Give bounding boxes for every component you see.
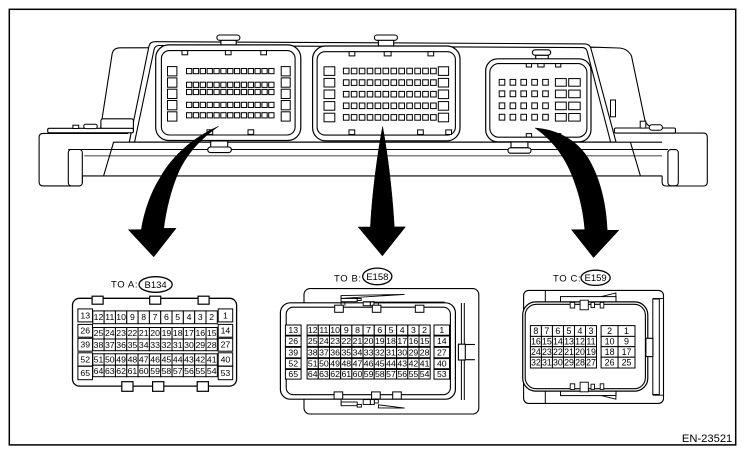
svg-text:8: 8 xyxy=(141,312,146,322)
svg-text:TO B:: TO B: xyxy=(334,274,362,285)
svg-text:43: 43 xyxy=(184,354,194,364)
svg-text:19: 19 xyxy=(162,328,172,338)
svg-text:53: 53 xyxy=(437,369,447,379)
svg-text:16: 16 xyxy=(409,336,419,346)
svg-text:2: 2 xyxy=(607,326,612,336)
svg-text:18: 18 xyxy=(386,336,396,346)
svg-text:10: 10 xyxy=(605,337,615,347)
svg-text:49: 49 xyxy=(116,354,126,364)
svg-text:21: 21 xyxy=(564,347,574,357)
svg-text:44: 44 xyxy=(173,354,183,364)
svg-text:26: 26 xyxy=(605,358,615,368)
svg-text:38: 38 xyxy=(308,347,318,357)
svg-text:34: 34 xyxy=(353,347,363,357)
svg-text:40: 40 xyxy=(437,359,447,369)
svg-text:64: 64 xyxy=(308,369,318,379)
svg-text:16: 16 xyxy=(195,328,205,338)
svg-text:55: 55 xyxy=(409,369,419,379)
svg-text:22: 22 xyxy=(553,347,563,357)
svg-text:18: 18 xyxy=(605,347,615,357)
svg-text:13: 13 xyxy=(564,337,574,347)
svg-text:21: 21 xyxy=(353,336,363,346)
svg-text:20: 20 xyxy=(364,336,374,346)
svg-text:13: 13 xyxy=(80,310,90,320)
svg-text:10: 10 xyxy=(116,312,126,322)
svg-text:57: 57 xyxy=(386,369,396,379)
svg-text:20: 20 xyxy=(150,328,160,338)
svg-text:14: 14 xyxy=(221,326,231,336)
svg-text:34: 34 xyxy=(139,340,149,350)
svg-text:25: 25 xyxy=(308,336,318,346)
svg-text:22: 22 xyxy=(128,328,138,338)
svg-text:17: 17 xyxy=(397,336,407,346)
svg-text:5: 5 xyxy=(175,312,180,322)
svg-text:EN-23521: EN-23521 xyxy=(682,433,732,445)
svg-text:14: 14 xyxy=(553,337,563,347)
svg-text:31: 31 xyxy=(173,340,183,350)
svg-text:59: 59 xyxy=(150,366,160,376)
svg-text:14: 14 xyxy=(437,336,447,346)
svg-text:42: 42 xyxy=(195,354,205,364)
svg-text:15: 15 xyxy=(542,337,552,347)
svg-text:3: 3 xyxy=(198,312,203,322)
svg-text:3: 3 xyxy=(411,325,416,335)
svg-text:4: 4 xyxy=(578,326,583,336)
svg-text:32: 32 xyxy=(531,358,541,368)
svg-text:50: 50 xyxy=(319,359,329,369)
svg-text:3: 3 xyxy=(589,326,594,336)
svg-text:19: 19 xyxy=(375,336,385,346)
svg-text:38: 38 xyxy=(94,340,104,350)
svg-text:52: 52 xyxy=(80,354,90,364)
svg-text:59: 59 xyxy=(364,369,374,379)
svg-text:61: 61 xyxy=(341,369,351,379)
svg-text:39: 39 xyxy=(288,347,298,357)
svg-text:7: 7 xyxy=(153,312,158,322)
svg-text:12: 12 xyxy=(575,337,585,347)
svg-text:29: 29 xyxy=(564,358,574,368)
svg-text:35: 35 xyxy=(341,347,351,357)
svg-text:11: 11 xyxy=(319,325,328,335)
svg-text:30: 30 xyxy=(397,347,407,357)
svg-text:27: 27 xyxy=(586,358,596,368)
svg-text:40: 40 xyxy=(221,354,231,364)
svg-text:8: 8 xyxy=(533,326,538,336)
svg-text:33: 33 xyxy=(364,347,374,357)
svg-text:45: 45 xyxy=(162,354,172,364)
svg-text:55: 55 xyxy=(195,366,205,376)
svg-text:24: 24 xyxy=(319,336,329,346)
svg-text:1: 1 xyxy=(439,325,444,335)
svg-text:TO C:: TO C: xyxy=(553,274,581,285)
svg-text:23: 23 xyxy=(116,328,126,338)
svg-text:52: 52 xyxy=(288,359,298,369)
svg-text:51: 51 xyxy=(308,359,318,369)
svg-text:10: 10 xyxy=(330,325,340,335)
svg-text:42: 42 xyxy=(409,359,419,369)
svg-text:4: 4 xyxy=(187,312,192,322)
svg-text:27: 27 xyxy=(221,340,231,350)
svg-text:1: 1 xyxy=(624,326,629,336)
svg-text:61: 61 xyxy=(128,366,138,376)
svg-text:24: 24 xyxy=(105,328,115,338)
svg-text:60: 60 xyxy=(139,366,149,376)
svg-text:12: 12 xyxy=(308,325,318,335)
svg-text:32: 32 xyxy=(375,347,385,357)
svg-text:5: 5 xyxy=(389,325,394,335)
svg-text:23: 23 xyxy=(542,347,552,357)
svg-text:29: 29 xyxy=(195,340,205,350)
svg-text:41: 41 xyxy=(420,359,430,369)
svg-text:56: 56 xyxy=(184,366,194,376)
svg-text:24: 24 xyxy=(531,347,541,357)
svg-text:41: 41 xyxy=(207,354,217,364)
svg-text:48: 48 xyxy=(128,354,138,364)
svg-text:19: 19 xyxy=(586,347,596,357)
svg-text:65: 65 xyxy=(288,369,298,379)
svg-text:15: 15 xyxy=(420,336,430,346)
svg-text:E158: E158 xyxy=(366,272,388,283)
svg-text:4: 4 xyxy=(400,325,405,335)
svg-text:6: 6 xyxy=(377,325,382,335)
svg-text:60: 60 xyxy=(353,369,363,379)
svg-text:16: 16 xyxy=(531,337,541,347)
svg-text:6: 6 xyxy=(555,326,560,336)
svg-text:9: 9 xyxy=(624,337,629,347)
svg-text:37: 37 xyxy=(105,340,115,350)
svg-text:45: 45 xyxy=(375,359,385,369)
svg-text:48: 48 xyxy=(341,359,351,369)
svg-text:6: 6 xyxy=(164,312,169,322)
svg-text:30: 30 xyxy=(553,358,563,368)
svg-text:39: 39 xyxy=(80,340,90,350)
svg-text:28: 28 xyxy=(207,340,217,350)
svg-text:65: 65 xyxy=(80,368,90,378)
svg-text:2: 2 xyxy=(422,325,427,335)
svg-text:26: 26 xyxy=(80,326,90,336)
svg-text:31: 31 xyxy=(542,358,552,368)
svg-text:53: 53 xyxy=(221,368,231,378)
svg-text:9: 9 xyxy=(344,325,349,335)
svg-text:25: 25 xyxy=(622,358,632,368)
svg-text:18: 18 xyxy=(173,328,183,338)
svg-text:TO A:: TO A: xyxy=(111,280,138,291)
svg-text:9: 9 xyxy=(130,312,135,322)
svg-text:27: 27 xyxy=(437,347,447,357)
svg-text:22: 22 xyxy=(341,336,351,346)
svg-text:1: 1 xyxy=(223,310,228,320)
svg-text:11: 11 xyxy=(105,312,114,322)
svg-text:35: 35 xyxy=(128,340,138,350)
svg-text:26: 26 xyxy=(288,336,298,346)
svg-text:36: 36 xyxy=(330,347,340,357)
svg-text:62: 62 xyxy=(116,366,126,376)
svg-text:33: 33 xyxy=(150,340,160,350)
svg-text:23: 23 xyxy=(330,336,340,346)
svg-text:47: 47 xyxy=(139,354,149,364)
svg-text:46: 46 xyxy=(364,359,374,369)
svg-text:32: 32 xyxy=(162,340,172,350)
svg-text:29: 29 xyxy=(409,347,419,357)
svg-text:17: 17 xyxy=(622,347,632,357)
svg-text:17: 17 xyxy=(184,328,194,338)
svg-text:51: 51 xyxy=(94,354,104,364)
svg-text:28: 28 xyxy=(420,347,430,357)
svg-text:58: 58 xyxy=(375,369,385,379)
svg-text:7: 7 xyxy=(544,326,549,336)
svg-text:56: 56 xyxy=(397,369,407,379)
svg-text:13: 13 xyxy=(288,325,298,335)
svg-text:E159: E159 xyxy=(585,273,607,284)
svg-text:54: 54 xyxy=(420,369,430,379)
svg-text:5: 5 xyxy=(567,326,572,336)
svg-text:20: 20 xyxy=(575,347,585,357)
svg-text:49: 49 xyxy=(330,359,340,369)
svg-text:2: 2 xyxy=(209,312,214,322)
svg-text:64: 64 xyxy=(94,366,104,376)
svg-text:54: 54 xyxy=(207,366,217,376)
svg-text:25: 25 xyxy=(94,328,104,338)
svg-text:B134: B134 xyxy=(145,280,167,291)
svg-text:31: 31 xyxy=(386,347,396,357)
svg-text:36: 36 xyxy=(116,340,126,350)
svg-text:28: 28 xyxy=(575,358,585,368)
svg-text:57: 57 xyxy=(173,366,183,376)
svg-text:37: 37 xyxy=(319,347,329,357)
svg-text:50: 50 xyxy=(105,354,115,364)
svg-text:12: 12 xyxy=(94,312,104,322)
svg-text:30: 30 xyxy=(184,340,194,350)
svg-text:62: 62 xyxy=(330,369,340,379)
svg-text:58: 58 xyxy=(162,366,172,376)
svg-text:63: 63 xyxy=(319,369,329,379)
svg-text:63: 63 xyxy=(105,366,115,376)
svg-text:15: 15 xyxy=(207,328,217,338)
svg-text:11: 11 xyxy=(586,337,595,347)
svg-text:7: 7 xyxy=(366,325,371,335)
svg-text:8: 8 xyxy=(355,325,360,335)
svg-text:46: 46 xyxy=(150,354,160,364)
svg-text:44: 44 xyxy=(386,359,396,369)
svg-text:43: 43 xyxy=(397,359,407,369)
svg-text:47: 47 xyxy=(353,359,363,369)
svg-text:21: 21 xyxy=(139,328,149,338)
